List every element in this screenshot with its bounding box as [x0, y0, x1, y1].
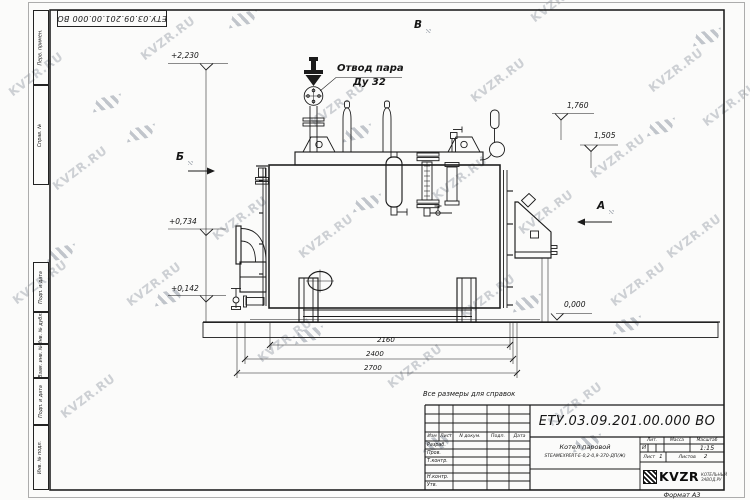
- scale-value: 1:15: [690, 443, 724, 452]
- kvzr-logo-sub: КОТЕЛЬНЫЙ ЗАВОД.РУ: [701, 472, 727, 482]
- top-doc-number-box: ЕТУ.03.09.201.00.000 ВО: [57, 10, 167, 27]
- sheets-label: Листов: [679, 455, 696, 460]
- margin-label: Взам. инв. №: [39, 345, 44, 378]
- format-note: Формат А3: [640, 490, 724, 499]
- margin-box-podp-data-2: Подп. и дата: [33, 378, 49, 425]
- lifting-lugs: [303, 137, 480, 152]
- elevation-burner-axis: +0,734: [169, 217, 197, 226]
- margin-label: Инв. № дубл.: [39, 312, 44, 345]
- view-label-b: Б: [176, 151, 184, 163]
- margin-label: Инв. № подл.: [39, 441, 44, 474]
- title-doc-number: ЕТУ.03.09.201.00.000 ВО: [530, 407, 724, 435]
- steam-outlet-dn: Ду 32: [353, 77, 386, 88]
- sheet-value: 1: [659, 454, 663, 460]
- elevation-bracket-top: 1,505: [594, 131, 615, 140]
- supports: [250, 278, 540, 322]
- elevation-sensor-top: 1,760: [567, 101, 588, 110]
- margin-box-perv-primen: Перв. примен.: [33, 10, 49, 85]
- steam-outlet-label: Отвод пара: [337, 63, 404, 74]
- safety-valves: [343, 101, 391, 152]
- sig-row-tkontr: Т.контр.: [427, 457, 453, 465]
- margin-label: Подп. и дата: [39, 271, 44, 304]
- margin-box-inv-podl: Инв. № подл.: [33, 425, 49, 490]
- margin-box-sprav-no: Справ. №: [33, 85, 49, 185]
- product-name-line2: STEAMEXPERT-Е-0,2-0,9-370-ДП(Ж): [531, 452, 639, 461]
- elevation-ground: 0,000: [564, 300, 585, 309]
- elevation-marks: [168, 64, 618, 322]
- sig-row-razrab: Разраб.: [427, 441, 453, 449]
- top-doc-number: ЕТУ.03.09.201.00.000 ВО: [57, 14, 167, 23]
- sig-row-nkontr: Н.контр.: [427, 473, 453, 481]
- manhole: [306, 270, 334, 293]
- ground: [203, 322, 720, 338]
- mass-header: Масса: [664, 437, 690, 444]
- margin-label: Подп. и дата: [39, 385, 44, 418]
- reference-note: Все размеры для справок: [423, 390, 515, 398]
- view-label-v: В: [414, 19, 422, 31]
- margin-box-vzam-inv: Взам. инв. №: [33, 344, 49, 378]
- rev-col-podp: Подп.: [487, 431, 509, 441]
- margin-label: Справ. №: [39, 123, 44, 146]
- margin-label: Перв. примен.: [39, 29, 44, 65]
- sheet-label: Лист: [643, 455, 655, 460]
- rev-col-izm: Изм: [425, 431, 439, 441]
- lit-value: И: [640, 444, 648, 452]
- view-label-a-mark-icon: [609, 210, 614, 214]
- sig-row-prov: Пров.: [427, 449, 453, 457]
- view-arrows: [188, 168, 612, 226]
- view-label-b-mark-icon: [188, 161, 193, 165]
- separator-cylinder: [386, 152, 407, 216]
- kvzr-logo-text: KVZR: [659, 469, 699, 484]
- margin-box-podp-data-1: Подп. и дата: [33, 262, 49, 312]
- sheet-cell: Лист 1: [641, 452, 665, 462]
- water-level-gauge: [417, 153, 459, 216]
- lit-header: Лит.: [640, 437, 664, 444]
- sig-row-utv: Утв.: [427, 481, 453, 489]
- margin-box-inv-dubl: Инв. № дубл.: [33, 312, 49, 344]
- rev-col-data: Дата: [509, 431, 530, 441]
- sheets-value: 2: [704, 454, 708, 460]
- elevation-valve-top: +2,230: [171, 51, 199, 60]
- view-label-v-mark-icon: [426, 29, 431, 33]
- dimension-2160: 2160: [377, 336, 395, 344]
- kvzr-logo-icon: [643, 470, 657, 484]
- kvzr-sub-line2: ЗАВОД.РУ: [701, 477, 727, 482]
- dimension-2400: 2400: [366, 350, 384, 358]
- rev-col-ndokum: N докум.: [453, 431, 487, 441]
- sheets-cell: Листов 2: [668, 452, 718, 462]
- rev-col-list: Лист: [439, 431, 453, 441]
- view-label-a: А: [597, 200, 605, 212]
- dimension-2700: 2700: [364, 364, 382, 372]
- elevation-drain: +0,142: [171, 284, 199, 293]
- flue-bracket: [515, 194, 557, 322]
